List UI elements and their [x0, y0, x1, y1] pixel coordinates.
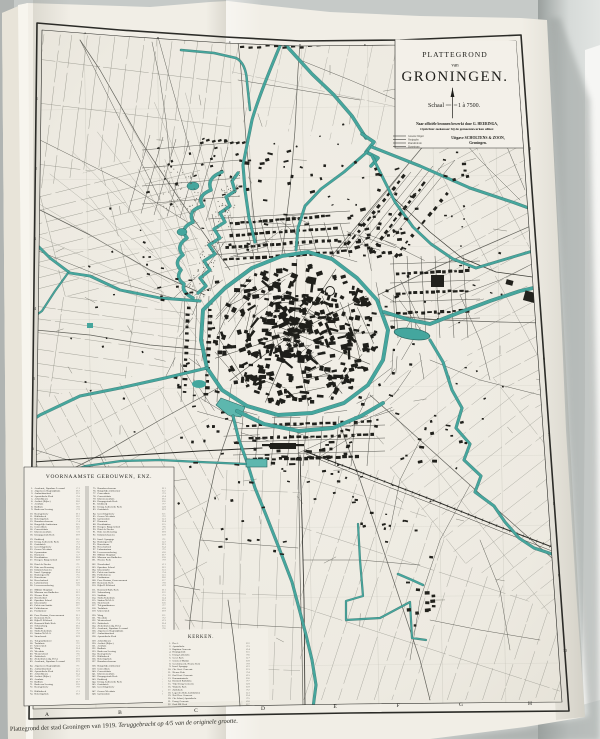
svg-text:Waalsche Kerk: Waalsche Kerk	[173, 687, 188, 689]
svg-text:27.: 27.	[30, 559, 34, 562]
svg-text:Oud Geref. Gemeente: Oud Geref. Gemeente	[173, 674, 193, 677]
svg-text:Leger des Heils, Luchtfabriek: Leger des Heils, Luchtfabriek	[173, 691, 201, 694]
svg-text:92.: 92.	[93, 533, 97, 536]
svg-text:Roomsch Katholieke: Roomsch Katholieke	[173, 681, 192, 683]
svg-text:Nieuwe Kerk: Nieuwe Kerk	[98, 559, 112, 562]
svg-text:137.: 137.	[92, 660, 97, 663]
svg-text:22.: 22.	[168, 704, 171, 706]
svg-text:E 2: E 2	[247, 643, 250, 645]
svg-text:D 9: D 9	[76, 534, 79, 536]
svg-text:F 2: F 2	[247, 689, 250, 691]
svg-text:17.: 17.	[168, 689, 171, 691]
svg-text:G 1: G 1	[162, 564, 165, 566]
svg-text:E: E	[364, 43, 366, 47]
svg-text:Doopsgezinde: Doopsgezinde	[173, 651, 186, 654]
svg-text:83.: 83.	[93, 508, 97, 511]
svg-text:74.: 74.	[30, 693, 34, 696]
svg-text:B: B	[118, 710, 122, 716]
svg-text:14.: 14.	[168, 681, 171, 683]
svg-text:Infanteriekazerne: Infanteriekazerne	[98, 533, 116, 536]
svg-text:C 9: C 9	[76, 611, 79, 613]
svg-text:21.: 21.	[168, 701, 171, 703]
svg-text:20.: 20.	[168, 698, 171, 700]
svg-text:Academie, Openbare Leeszaal: Academie, Openbare Leeszaal	[35, 660, 66, 663]
svg-text:C: C	[194, 708, 198, 714]
svg-text:Geref. Kerk: Geref. Kerk	[173, 657, 185, 660]
svg-text:Zuiderkerk: Zuiderkerk	[173, 689, 184, 691]
svg-text:PLATTEGROND: PLATTEGROND	[422, 50, 487, 59]
svg-text:36.: 36.	[30, 584, 34, 587]
svg-text:Universiteit: Universiteit	[98, 610, 110, 613]
svg-text:6: 6	[32, 446, 34, 451]
svg-text:Rijks H.B.School: Rijks H.B.School	[98, 584, 116, 587]
svg-text:Oude RK. Kerk: Oude RK. Kerk	[173, 704, 188, 706]
svg-text:van: van	[451, 64, 459, 69]
svg-text:Israel. Synagoge: Israel. Synagoge	[173, 665, 188, 668]
svg-text:5: 5	[33, 376, 35, 381]
svg-text:G: G	[459, 702, 463, 708]
svg-text:Nieuwe Kerk: Nieuwe Kerk	[173, 672, 186, 674]
svg-text:E 9: E 9	[163, 534, 166, 536]
svg-text:Gasfabriek: Gasfabriek	[98, 508, 110, 511]
svg-text:Apostolische: Apostolische	[173, 645, 185, 648]
svg-text:D 2: D 2	[76, 694, 79, 696]
svg-text:72.: 72.	[30, 686, 34, 689]
svg-text:E 2: E 2	[163, 592, 166, 594]
svg-text:Doopsgezinde Kerk: Doopsgezinde Kerk	[35, 533, 56, 536]
svg-text:Hoogere Burgerschool: Hoogere Burgerschool	[35, 559, 58, 562]
svg-text:12.: 12.	[168, 675, 171, 677]
svg-text:Apostolische Kerk: Apostolische Kerk	[98, 635, 117, 638]
svg-text:128.: 128.	[92, 635, 97, 638]
svg-text:C 1: C 1	[76, 691, 79, 693]
svg-text:E 9: E 9	[77, 560, 80, 562]
svg-text:Baptisten Gemeente: Baptisten Gemeente	[173, 649, 192, 651]
svg-text:F 9: F 9	[77, 687, 80, 689]
svg-text:18.: 18.	[30, 533, 34, 536]
svg-text:D: D	[261, 706, 265, 712]
svg-text:GRONINGEN.: GRONINGEN.	[402, 69, 509, 85]
svg-text:Schaal: Schaal	[428, 103, 444, 109]
svg-text:G 2: G 2	[246, 666, 249, 668]
svg-text:15.: 15.	[168, 684, 171, 686]
svg-text:18.: 18.	[168, 692, 171, 694]
svg-text:G 9: G 9	[162, 585, 165, 587]
svg-text:10: 10	[563, 648, 567, 653]
svg-text:Naar officiële bronnen bewerkt: Naar officiële bronnen bewerkt door G. H…	[416, 122, 498, 126]
svg-text:45.: 45.	[30, 610, 34, 613]
svg-text:4: 4	[34, 306, 36, 311]
svg-text:D 9: D 9	[162, 509, 165, 511]
svg-text:7: 7	[548, 432, 550, 437]
svg-text:Groote of Martini: Groote of Martini	[173, 659, 190, 662]
svg-text:Chr. Geref. Gemeente: Chr. Geref. Gemeente	[173, 668, 193, 671]
svg-text:H: H	[528, 701, 532, 707]
svg-text:Beursgebouw: Beursgebouw	[35, 686, 49, 689]
svg-text:4: 4	[533, 216, 535, 221]
svg-text:D 9: D 9	[76, 636, 79, 638]
svg-text:54.: 54.	[30, 635, 34, 638]
svg-text:Sterrebosch: Sterrebosch	[35, 635, 48, 638]
svg-text:9: 9	[558, 573, 560, 578]
svg-text:2: 2	[35, 166, 37, 171]
svg-text:10.: 10.	[168, 669, 171, 671]
svg-text:C 9: C 9	[76, 509, 79, 511]
svg-text:Remonstrantsche: Remonstrantsche	[173, 678, 189, 680]
svg-text:16.: 16.	[168, 687, 171, 689]
svg-text:146.: 146.	[92, 686, 97, 689]
svg-text:F 9: F 9	[247, 663, 250, 665]
svg-text:148.: 148.	[92, 693, 97, 696]
svg-text:101.: 101.	[92, 559, 97, 562]
svg-text:Brandweerkazerne: Brandweerkazerne	[98, 660, 118, 663]
svg-text:A: A	[45, 712, 49, 718]
svg-text:KERKEN.: KERKEN.	[188, 635, 214, 640]
svg-text:Gereformeerde, Nieuwe Kerk: Gereformeerde, Nieuwe Kerk	[173, 662, 201, 665]
svg-text:Chr. School, Apostolische: Chr. School, Apostolische	[173, 697, 197, 700]
svg-text:110.: 110.	[92, 584, 97, 587]
svg-text:119.: 119.	[92, 610, 97, 613]
svg-text:D 9: D 9	[162, 611, 165, 613]
svg-text:Gerechtsgebouw: Gerechtsgebouw	[98, 686, 115, 689]
svg-text:Stoomtram: Stoomtram	[408, 146, 420, 149]
svg-text:8: 8	[553, 501, 555, 506]
svg-text:Der A.: Der A.	[173, 642, 180, 645]
svg-text:F 1: F 1	[77, 564, 80, 566]
svg-text:D 2: D 2	[76, 592, 79, 594]
svg-text:11.: 11.	[168, 672, 171, 674]
svg-text:Gymnasium: Gymnasium	[98, 693, 110, 696]
svg-text:5: 5	[538, 286, 540, 291]
svg-text:Ned. Herv. Gemeente: Ned. Herv. Gemeente	[173, 695, 193, 697]
svg-text:F 9: F 9	[77, 585, 80, 587]
svg-text:F 9: F 9	[163, 560, 166, 562]
svg-text:1: 1	[36, 96, 38, 101]
svg-text:1 à 7500.: 1 à 7500.	[458, 103, 481, 109]
svg-text:E 9: E 9	[77, 661, 80, 663]
svg-text:Groningen.: Groningen.	[469, 141, 487, 145]
svg-text:6: 6	[543, 356, 545, 361]
svg-text:63.: 63.	[30, 660, 34, 663]
svg-text:Levensverzekering: Levensverzekering	[35, 584, 55, 587]
svg-text:Postkantoor: Postkantoor	[35, 610, 47, 613]
svg-text:Vrije Evang. Gemeente: Vrije Evang. Gemeente	[173, 683, 194, 686]
svg-text:F: F	[396, 703, 399, 709]
svg-text:VOORNAAMSTE GEBOUWEN, ENZ.: VOORNAAMSTE GEBOUWEN, ENZ.	[46, 474, 152, 480]
svg-text:Boteringehuis: Boteringehuis	[35, 693, 49, 696]
svg-text:Opzichter-teekenaar bij de gem: Opzichter-teekenaar bij de gemeentewerke…	[420, 127, 494, 131]
svg-text:19.: 19.	[168, 695, 171, 697]
svg-text:E 9: E 9	[247, 687, 250, 689]
svg-text:Uitgave SCHOLTENS & ZOON,: Uitgave SCHOLTENS & ZOON,	[451, 136, 504, 140]
svg-text:3: 3	[34, 236, 36, 241]
svg-text:13.: 13.	[168, 678, 171, 680]
svg-text:Bank van Leening: Bank van Leening	[35, 508, 54, 511]
svg-text:Evang. Luthersche: Evang. Luthersche	[173, 654, 190, 657]
svg-text:Evang. Gemeente: Evang. Gemeente	[173, 700, 189, 703]
svg-text:3: 3	[529, 146, 531, 151]
